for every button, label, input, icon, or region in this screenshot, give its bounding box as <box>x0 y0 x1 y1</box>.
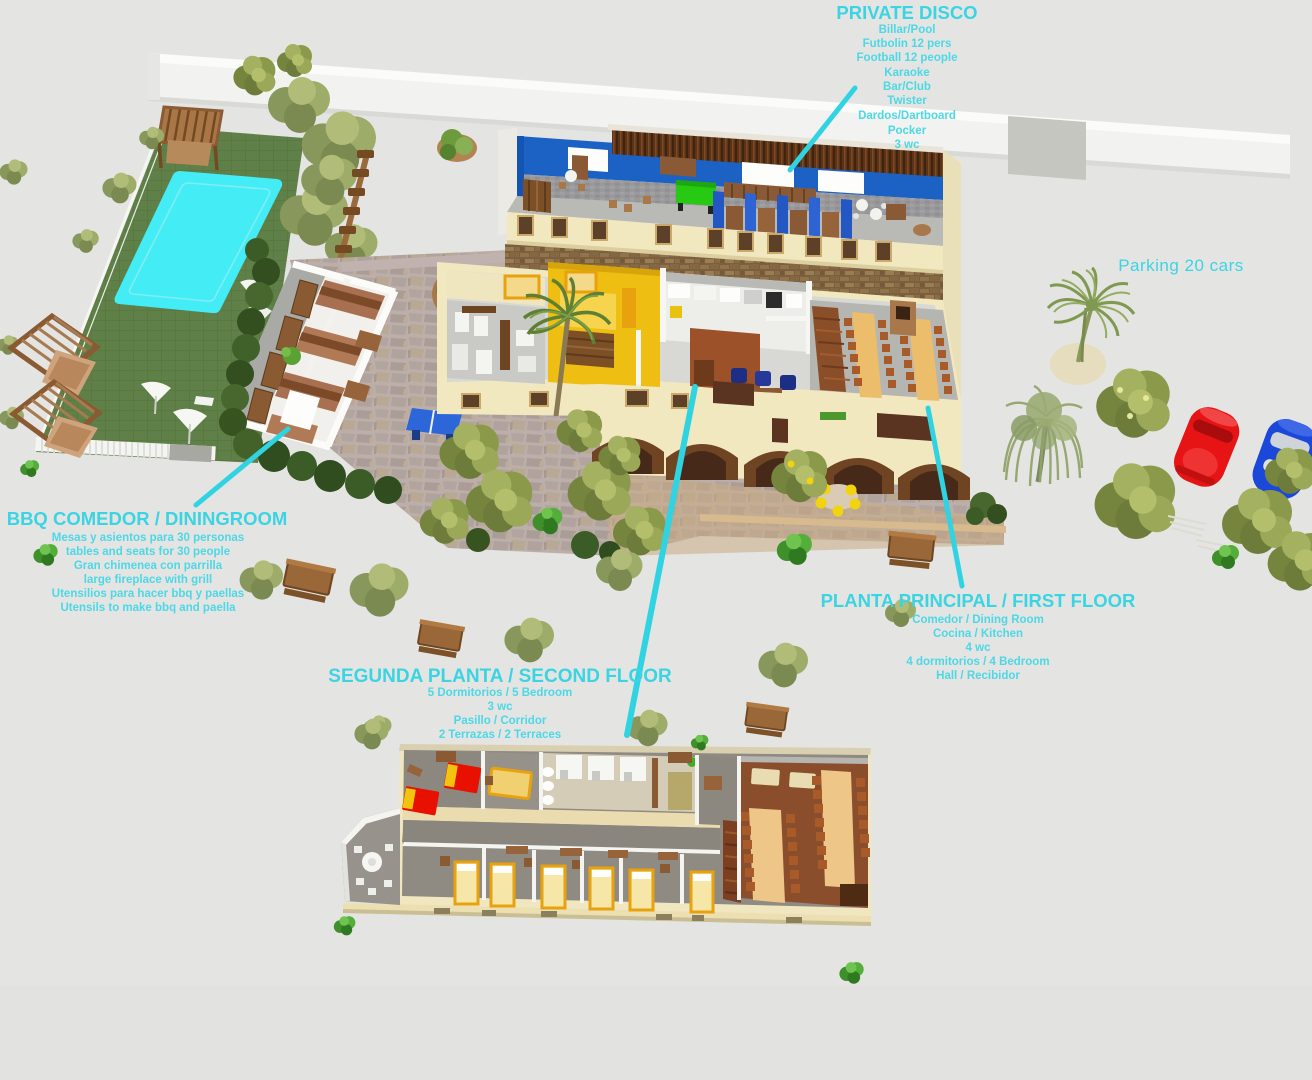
svg-text:Pasillo / Corridor: Pasillo / Corridor <box>454 715 547 727</box>
svg-text:PLANTA PRINCIPAL / FIRST FLOOR: PLANTA PRINCIPAL / FIRST FLOOR <box>821 590 1136 611</box>
svg-text:Futbolin 12 pers: Futbolin 12 pers <box>863 38 952 50</box>
svg-text:Pocker: Pocker <box>888 125 927 137</box>
svg-text:SEGUNDA PLANTA / SECOND FLOOR: SEGUNDA PLANTA / SECOND FLOOR <box>328 666 672 687</box>
svg-text:large fireplace with grill: large fireplace with grill <box>84 574 212 586</box>
svg-text:4 wc: 4 wc <box>966 642 992 654</box>
svg-text:Cocina / Kitchen: Cocina / Kitchen <box>933 628 1023 640</box>
svg-text:Mesas y asientos para 30 perso: Mesas y asientos para 30 personas <box>52 532 244 544</box>
svg-text:4 dormitorios / 4 Bedroom: 4 dormitorios / 4 Bedroom <box>906 656 1049 668</box>
svg-text:Dardos/Dartboard: Dardos/Dartboard <box>858 110 956 122</box>
svg-text:Football 12 people: Football 12 people <box>857 52 958 64</box>
svg-text:Utensils to make bbq and paell: Utensils to make bbq and paella <box>60 602 236 614</box>
svg-text:Gran chimenea con parrilla: Gran chimenea con parrilla <box>74 560 223 572</box>
svg-text:2 Terrazas / 2 Terraces: 2 Terrazas / 2 Terraces <box>439 729 561 741</box>
svg-text:PRIVATE DISCO: PRIVATE DISCO <box>836 2 977 23</box>
svg-text:Karaoke: Karaoke <box>884 67 929 79</box>
svg-text:5 Dormitorios / 5 Bedroom: 5 Dormitorios / 5 Bedroom <box>428 687 572 699</box>
svg-text:tables and seats for 30 people: tables and seats for 30 people <box>66 546 230 558</box>
svg-text:Utensilios para hacer bbq y pa: Utensilios para hacer bbq y paellas <box>52 588 244 600</box>
svg-text:BBQ COMEDOR / DININGROOM: BBQ COMEDOR / DININGROOM <box>7 508 288 529</box>
svg-text:Hall / Recibidor: Hall / Recibidor <box>936 670 1020 682</box>
svg-text:Bar/Club: Bar/Club <box>883 81 931 93</box>
svg-text:3 wc: 3 wc <box>895 139 921 151</box>
svg-text:Comedor / Dining Room: Comedor / Dining Room <box>912 614 1044 626</box>
svg-text:Parking 20 cars: Parking 20 cars <box>1118 256 1244 275</box>
svg-text:Billar/Pool: Billar/Pool <box>879 24 936 36</box>
svg-text:Twister: Twister <box>887 95 927 107</box>
svg-text:3 wc: 3 wc <box>488 701 514 713</box>
